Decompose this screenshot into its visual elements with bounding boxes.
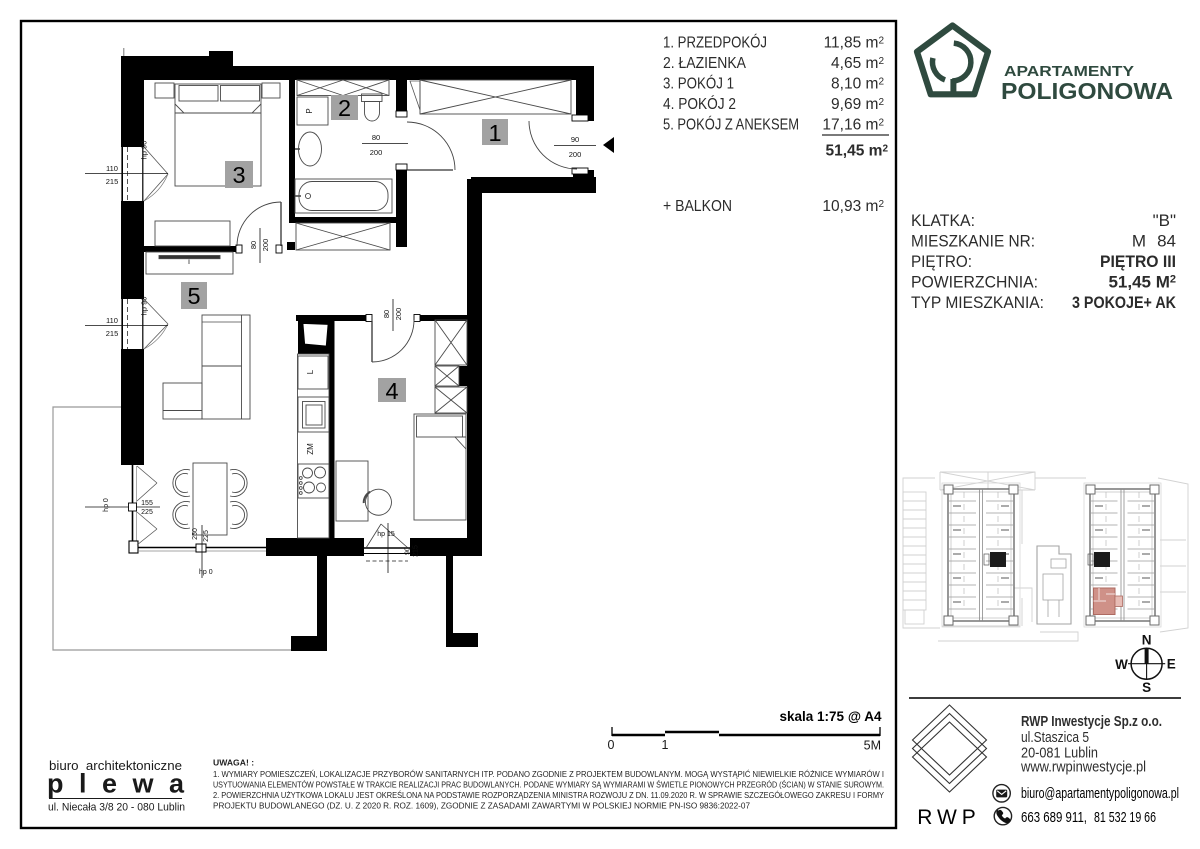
svg-text:POWIERZCHNIA:: POWIERZCHNIA: [911, 273, 1038, 292]
svg-text:ul.Staszica 5: ul.Staszica 5 [1021, 730, 1089, 746]
svg-text:M: M [1132, 232, 1146, 251]
svg-text:215: 215 [413, 545, 420, 557]
svg-text:UWAGA! :: UWAGA! : [213, 758, 254, 768]
svg-text:4: 4 [385, 378, 398, 404]
svg-text:5. POKÓJ Z ANEKSEM: 5. POKÓJ Z ANEKSEM [663, 116, 799, 133]
svg-text:200: 200 [569, 150, 582, 159]
svg-text:90: 90 [571, 135, 579, 144]
svg-text:PIĘTRO III: PIĘTRO III [1100, 252, 1176, 271]
svg-text:TYP MIESZKANIA:: TYP MIESZKANIA: [911, 293, 1044, 312]
svg-text:hp 0: hp 0 [103, 498, 110, 512]
svg-text:N: N [1142, 633, 1152, 648]
svg-text:ZM: ZM [306, 443, 315, 455]
svg-text:215: 215 [106, 329, 119, 338]
svg-text:225: 225 [203, 530, 210, 542]
svg-text:110: 110 [106, 316, 118, 325]
svg-text:80: 80 [249, 241, 258, 249]
svg-text:POLIGONOWA: POLIGONOWA [1001, 78, 1173, 104]
svg-text:PROJEKTU BUDOWLANEGO (DZ. U. Z: PROJEKTU BUDOWLANEGO (DZ. U. Z 2020 R. R… [213, 802, 750, 811]
svg-text:200: 200 [370, 148, 383, 157]
svg-text:155: 155 [141, 500, 153, 507]
svg-text:51,45 M2: 51,45 M2 [1108, 273, 1176, 292]
svg-text:81 532 19 66: 81 532 19 66 [1094, 810, 1156, 826]
svg-text:2. POWIERZCHNIA UŻYTKOWA LOKAL: 2. POWIERZCHNIA UŻYTKOWA LOKALU JEST OKR… [213, 789, 884, 800]
svg-text:9,69 m2: 9,69 m2 [831, 96, 884, 113]
svg-text:biuro@apartamentypoligonowa.pl: biuro@apartamentypoligonowa.pl [1021, 786, 1179, 802]
svg-text:skala 1:75 @ A4: skala 1:75 @ A4 [780, 709, 882, 724]
svg-text:2. ŁAZIENKA: 2. ŁAZIENKA [663, 55, 747, 72]
svg-text:L: L [306, 369, 315, 374]
svg-text:hp 15: hp 15 [377, 531, 395, 538]
svg-text:ul. Niecała 3/8 20 - 080 Lubl: ul. Niecała 3/8 20 - 080 Lublin [48, 802, 185, 814]
svg-text:RWP Inwestycje Sp.z o.o.: RWP Inwestycje Sp.z o.o. [1021, 714, 1162, 730]
svg-text:225: 225 [141, 509, 153, 516]
svg-text:2: 2 [338, 95, 351, 121]
svg-text:P: P [305, 108, 314, 113]
svg-text:1. WYMIARY POMIESZCZEŃ, LOK: 1. WYMIARY POMIESZCZEŃ, LOKALIZACJE PRZY… [213, 769, 884, 779]
svg-text:4,65 m2: 4,65 m2 [831, 55, 884, 72]
svg-text:5: 5 [187, 283, 200, 309]
svg-text:hp 90: hp 90 [140, 297, 149, 316]
svg-text:110: 110 [106, 164, 118, 173]
svg-text:4. POKÓJ 2: 4. POKÓJ 2 [663, 96, 736, 113]
svg-text:84: 84 [1157, 232, 1176, 251]
svg-text:hp 90: hp 90 [140, 141, 149, 160]
svg-text:0: 0 [608, 738, 615, 752]
svg-text:80: 80 [382, 310, 391, 318]
svg-text:PIĘTRO:: PIĘTRO: [911, 252, 972, 271]
svg-text:1. PRZEDPOKÓJ: 1. PRZEDPOKÓJ [663, 34, 767, 51]
svg-text:3. POKÓJ 1: 3. POKÓJ 1 [663, 75, 734, 92]
svg-text:MIESZKANIE NR:: MIESZKANIE NR: [911, 232, 1035, 251]
svg-text:8,10 m2: 8,10 m2 [831, 75, 884, 92]
svg-text:+ BALKON: + BALKON [663, 198, 732, 215]
svg-text:1: 1 [662, 738, 669, 752]
svg-text:51,45 m2: 51,45 m2 [826, 142, 889, 159]
svg-text:1: 1 [488, 120, 501, 146]
svg-text:200: 200 [261, 239, 270, 252]
svg-text:S: S [1142, 680, 1151, 695]
svg-text:hp 0: hp 0 [199, 569, 213, 576]
svg-text:RWP: RWP [917, 806, 981, 829]
svg-text:90: 90 [405, 547, 412, 555]
svg-text:KLATKA:: KLATKA: [911, 211, 975, 230]
svg-text:3: 3 [232, 162, 245, 188]
svg-text:USYTUOWANIA ELEMENTÓW POWSTAŁE: USYTUOWANIA ELEMENTÓW POWSTAŁE W TRAKCIE… [213, 779, 884, 790]
svg-text:663 689 911,: 663 689 911, [1021, 810, 1087, 826]
svg-text:"B": "B" [1153, 211, 1176, 230]
svg-text:5M: 5M [864, 739, 881, 753]
svg-text:17,16 m2: 17,16 m2 [822, 116, 884, 133]
svg-text:200: 200 [394, 308, 403, 321]
svg-text:E: E [1167, 657, 1176, 672]
svg-text:www.rwpinwestycje.pl: www.rwpinwestycje.pl [1020, 760, 1146, 776]
svg-text:W: W [1115, 657, 1128, 672]
svg-text:3 POKOJE+ AK: 3 POKOJE+ AK [1072, 293, 1177, 312]
svg-text:80: 80 [372, 133, 380, 142]
svg-text:215: 215 [106, 177, 119, 186]
svg-text:11,85 m2: 11,85 m2 [824, 34, 885, 51]
svg-text:10,93 m2: 10,93 m2 [822, 198, 884, 215]
